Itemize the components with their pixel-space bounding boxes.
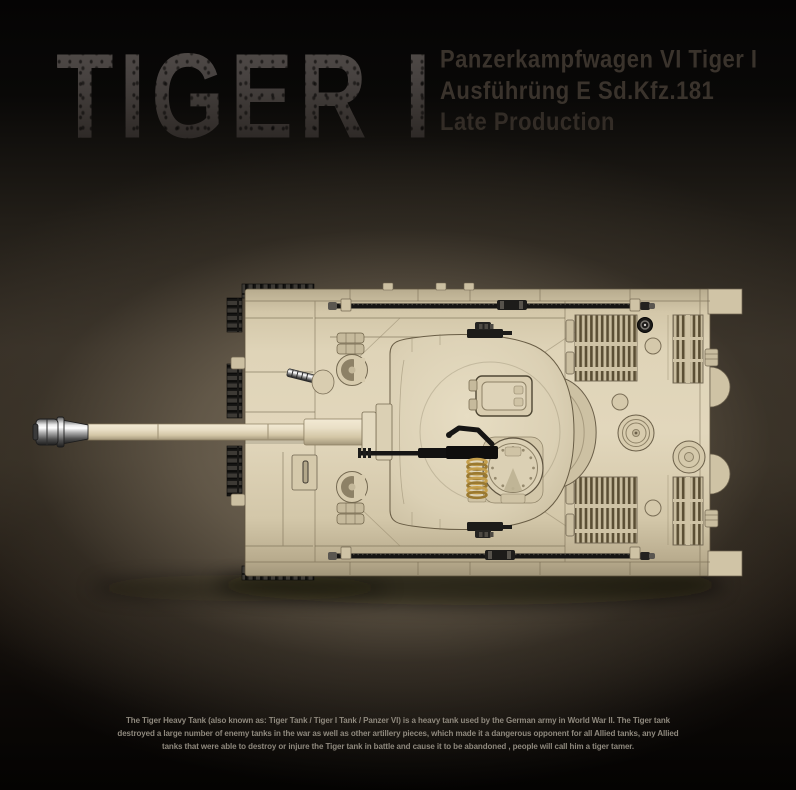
radiator-grille [575, 315, 637, 381]
front-peg [231, 494, 245, 506]
filler-cover [673, 441, 705, 473]
radio-operator-hatch [337, 472, 368, 503]
product-title: TIGER I [56, 36, 437, 156]
gun-barrel [33, 417, 364, 447]
barrel-collar [362, 412, 376, 452]
radiator-grille [575, 477, 637, 543]
exhaust-muffler [710, 454, 730, 494]
driver-hatch [337, 355, 368, 386]
exhaust-muffler [710, 367, 730, 407]
muzzle-brake [33, 417, 88, 447]
front-peg [231, 357, 245, 369]
product-hero: TIGER I Panzerkampfwagen VI Tiger I Ausf… [0, 0, 796, 790]
product-subtitle: Panzerkampfwagen VI Tiger I Ausführüng E… [440, 44, 758, 138]
engine-fan-cover [618, 415, 654, 451]
air-intake-grille [673, 477, 703, 545]
subtitle-line: Panzerkampfwagen VI Tiger I [440, 44, 758, 75]
loader-hatch [469, 376, 532, 416]
deck-stud [645, 500, 661, 516]
deck-stud [612, 394, 628, 410]
subtitle-line: Ausführüng E Sd.Kfz.181 [440, 75, 758, 106]
product-description: The Tiger Heavy Tank (also known as: Tig… [109, 714, 687, 753]
escape-hatch [292, 455, 317, 490]
rear-corner-block [708, 551, 742, 576]
fuel-cap [638, 318, 653, 333]
air-intake-grille [673, 315, 703, 383]
rear-corner-block [708, 289, 742, 314]
deck-stud [645, 338, 661, 354]
subtitle-line: Late Production [440, 107, 758, 138]
